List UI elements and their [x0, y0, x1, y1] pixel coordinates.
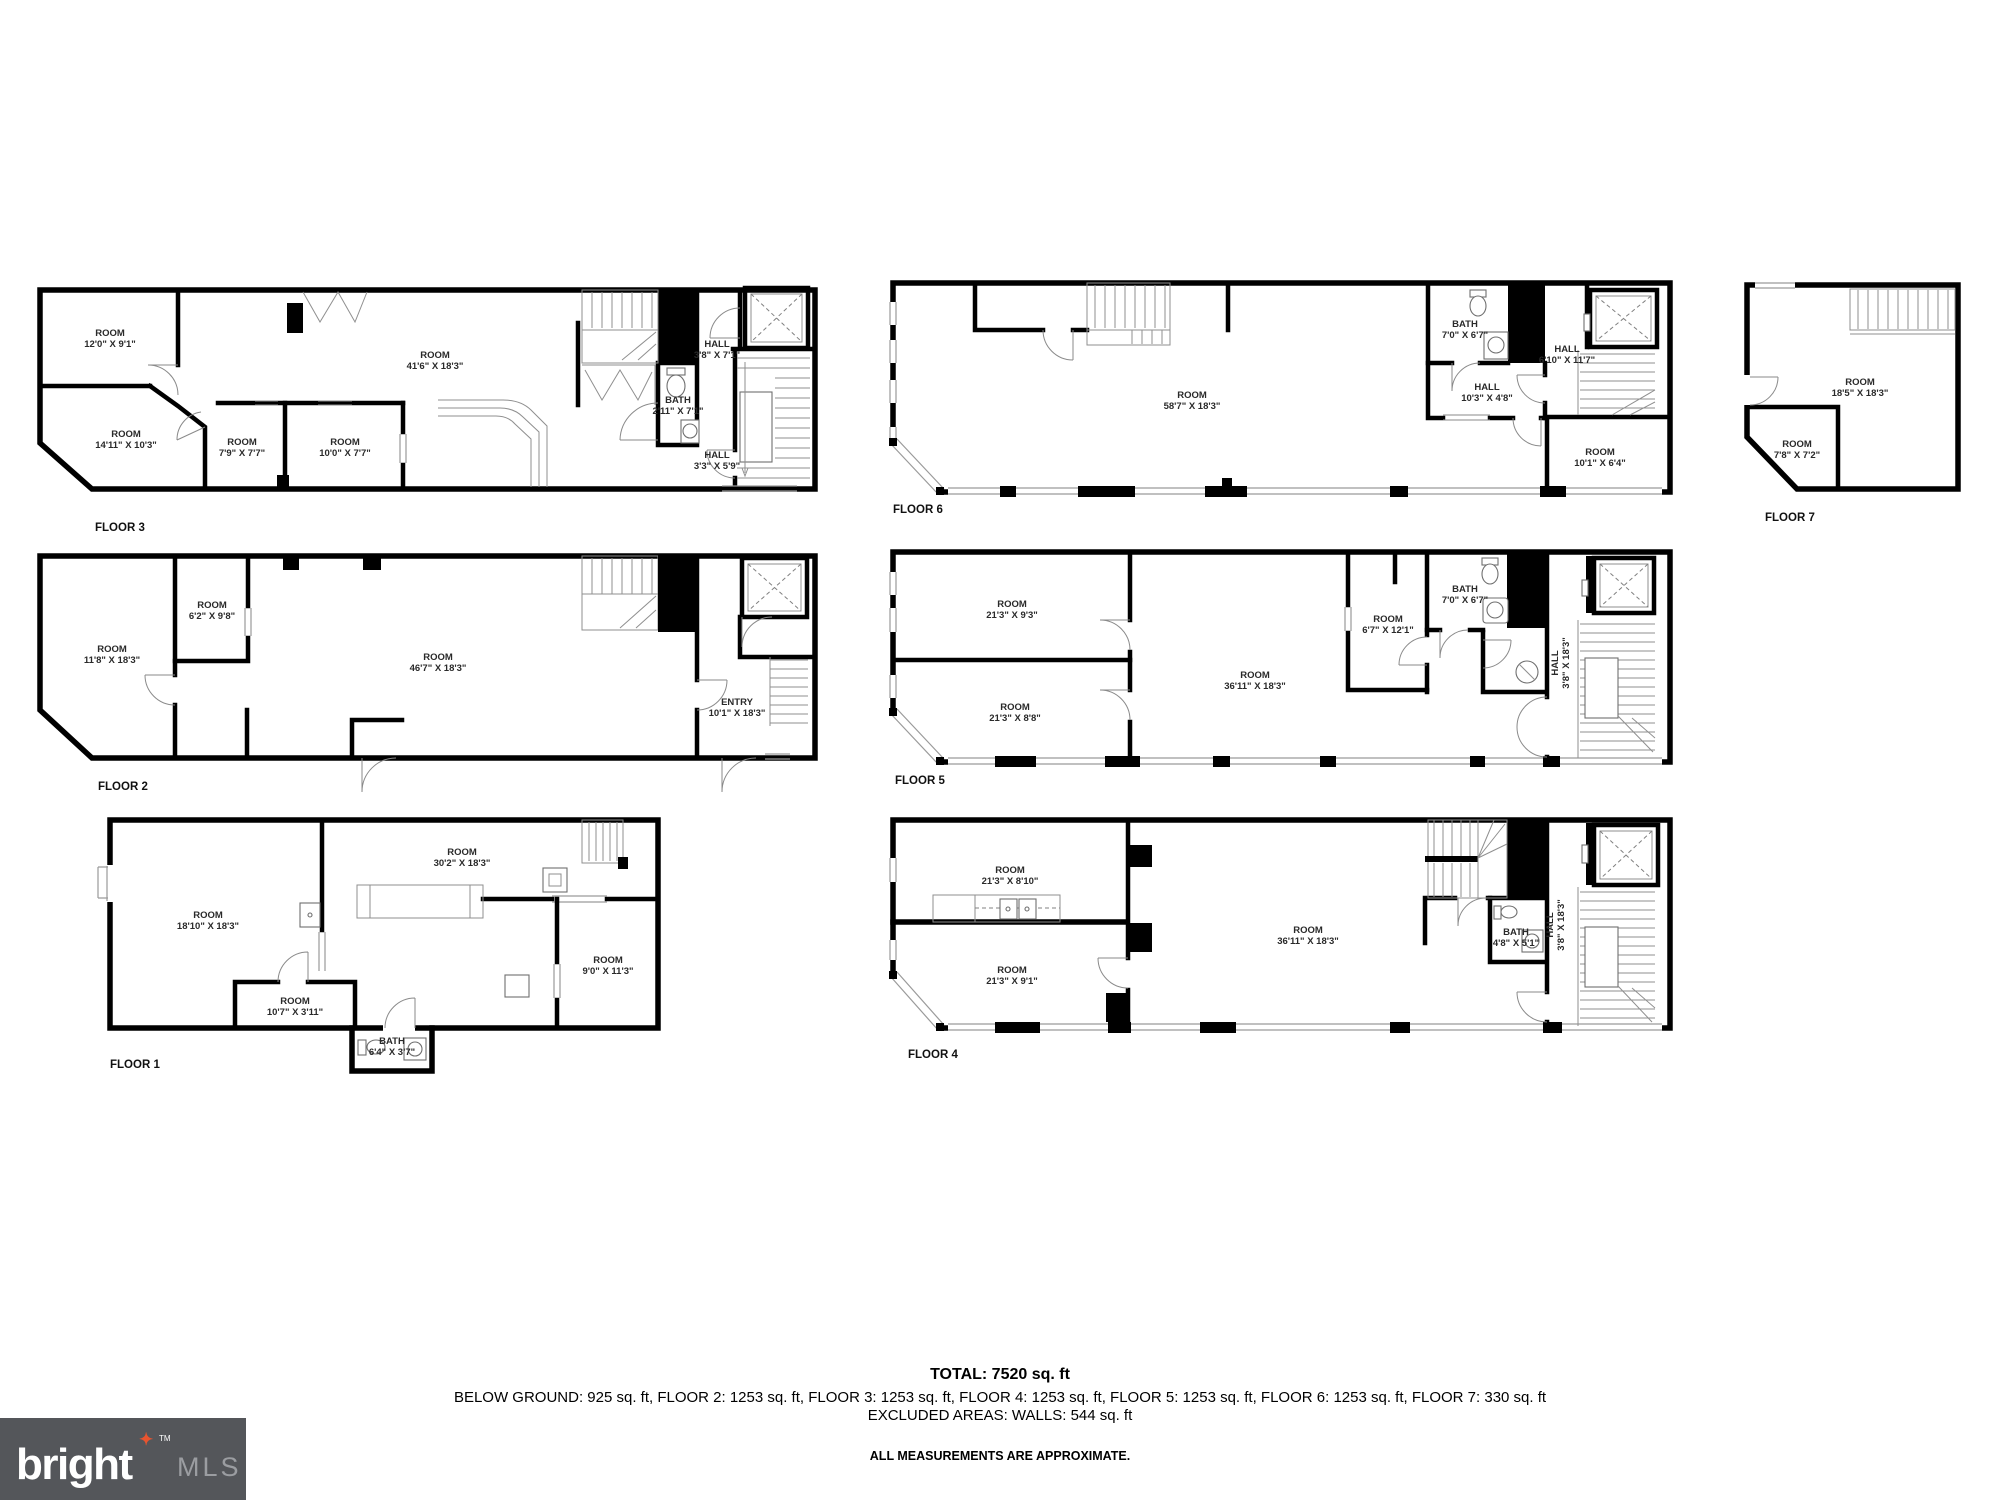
floor-label: FLOOR 6 [893, 504, 943, 516]
floor-4-kitchen-icon [933, 895, 1060, 922]
room-label: HALL [1550, 650, 1561, 676]
room-dims: 46'7" X 18'3" [410, 663, 467, 674]
star-icon: ✦ [139, 1430, 153, 1450]
trademark-text: TM [159, 1434, 171, 1443]
floor-6-bay-window [889, 438, 944, 495]
room-label: ROOM [1782, 439, 1812, 450]
room-dims: 3'3" X 5'9" [694, 461, 740, 472]
room-label: ROOM [197, 600, 227, 611]
room-label: BATH [665, 395, 691, 406]
room-dims: 10'3" X 4'8" [1461, 393, 1513, 404]
room-dims: 12'0" X 9'1" [84, 339, 136, 350]
room-dims: 58'7" X 18'3" [1164, 401, 1221, 412]
room-label: ROOM [1000, 702, 1030, 713]
floor-1-plan: ROOM 18'10" X 18'3" ROOM 30'2" X 18'3" R… [98, 820, 658, 1071]
room-label: ROOM [1177, 390, 1207, 401]
floor-breakdown-text: BELOW GROUND: 925 sq. ft, FLOOR 2: 1253 … [0, 1389, 2000, 1406]
room-dims: 30'2" X 18'3" [434, 858, 491, 869]
floorplan-canvas: ROOM 12'0" X 9'1" ROOM 14'11" X 10'3" RO… [0, 0, 2000, 1500]
room-dims: 6'4" X 3'7" [369, 1047, 415, 1058]
floor-6-doors [1043, 330, 1545, 446]
room-dims: 21'3" X 8'8" [989, 713, 1041, 724]
room-label: ROOM [423, 652, 453, 663]
room-label: HALL [704, 450, 730, 461]
room-dims: 36'11" X 18'3" [1224, 681, 1286, 692]
floor-4-plan: ROOM 21'3" X 8'10" ROOM 21'3" X 9'1" ROO… [888, 818, 1670, 1061]
floor-6-stairs-icon [1087, 283, 1170, 345]
floor-6-elevator-icon [1584, 290, 1657, 347]
room-label: ROOM [1240, 670, 1270, 681]
floor-4-bottom-windows [948, 1022, 1662, 1033]
floor-2-doors [145, 617, 790, 792]
floor-4-elevator-icon [1582, 825, 1658, 885]
room-dims: 18'10" X 18'3" [177, 921, 239, 932]
room-dims: 7'8" X 7'2" [1774, 450, 1820, 461]
room-dims: 10'7" X 3'11" [267, 1007, 323, 1018]
room-dims: 21'3" X 8'10" [982, 876, 1039, 887]
room-dims: 36'11" X 18'3" [1277, 936, 1339, 947]
room-label: ROOM [280, 996, 310, 1007]
floor-5-plan: ROOM 21'3" X 9'3" ROOM 21'3" X 8'8" ROOM… [888, 552, 1670, 787]
floor-7-window [1755, 281, 1795, 290]
room-label: HALL [1554, 344, 1580, 355]
room-dims: 14'11" X 10'3" [95, 440, 157, 451]
room-label: ROOM [1845, 377, 1875, 388]
room-label: ROOM [447, 847, 477, 858]
floor-2-elevator-icon [742, 558, 807, 617]
room-label: ROOM [1293, 925, 1323, 936]
room-dims: 6'7" X 12'1" [1362, 625, 1414, 636]
floor-label: FLOOR 1 [110, 1059, 160, 1071]
room-label: ROOM [1585, 447, 1615, 458]
room-dims: 10'0" X 7'7" [319, 448, 371, 459]
floor-4-stairs-icon [1425, 820, 1507, 898]
floor-3-walls [40, 288, 815, 489]
room-label: ROOM [1373, 614, 1403, 625]
floor-1-walls [98, 820, 658, 1071]
floor-3-counter-icon [438, 400, 547, 487]
room-label: BATH [1452, 584, 1478, 595]
floor-label: FLOOR 4 [908, 1049, 958, 1061]
room-label: ROOM [997, 965, 1027, 976]
floor-5-doors [1100, 620, 1547, 757]
room-label: ROOM [97, 644, 127, 655]
floor-4-doors [1098, 898, 1547, 1022]
room-label: BATH [379, 1036, 405, 1047]
floor-2-plan: ROOM 11'8" X 18'3" ROOM 6'2" X 9'8" ROOM… [40, 554, 815, 793]
floor-7-doors [1743, 375, 1778, 405]
room-dims: 3'8" X 7'1" [694, 350, 740, 361]
room-label: HALL [704, 339, 730, 350]
floor-6-plan: ROOM 58'7" X 18'3" BATH 7'0" X 6'7" HALL… [888, 283, 1670, 516]
room-dims: 4'8" X 5'1" [1493, 938, 1539, 949]
room-dims: 6'2" X 9'8" [189, 611, 235, 622]
floor-1-island-icon [357, 885, 483, 918]
bright-mls-logo: bright ✦ TM MLS [0, 1418, 246, 1500]
disclaimer-text: ALL MEASUREMENTS ARE APPROXIMATE. [0, 1449, 2000, 1463]
floor-2-stairwell-icon [770, 657, 808, 726]
room-label: ROOM [420, 350, 450, 361]
room-dims: 3'8" X 18'3" [1556, 899, 1567, 951]
total-area-text: TOTAL: 7520 sq. ft [0, 1366, 2000, 1384]
excluded-areas-text: EXCLUDED AREAS: WALLS: 544 sq. ft [0, 1407, 2000, 1424]
logo-brand-text: bright [16, 1440, 132, 1490]
floor-7-plan: ROOM 18'5" X 18'3" ROOM 7'8" X 7'2" FLOO… [1743, 281, 1958, 524]
floor-4-stairwell-icon [1578, 887, 1655, 1026]
room-label: BATH [1452, 319, 1478, 330]
room-dims: 7'0" X 6'7" [1442, 330, 1488, 341]
floor-3-stairs-icon [582, 290, 658, 405]
floor-1-stairs-icon [582, 820, 628, 869]
room-label: ROOM [95, 328, 125, 339]
floor-1-fixtures [300, 868, 567, 997]
logo-suffix-text: MLS [177, 1452, 242, 1483]
floor-6-bottom-windows [948, 486, 1662, 497]
room-dims: 3'8" X 18'3" [1561, 637, 1572, 689]
room-dims: 21'3" X 9'3" [986, 610, 1038, 621]
room-label: ROOM [330, 437, 360, 448]
room-dims: 21'3" X 9'1" [986, 976, 1038, 987]
room-dims: 6'10" X 11'7" [1539, 355, 1595, 366]
room-label: ROOM [593, 955, 623, 966]
floor-5-bay-window [889, 708, 944, 765]
room-dims: 7'9" X 7'7" [219, 448, 265, 459]
floor-2-stairs-icon [582, 554, 697, 632]
floor-5-elevator-icon [1582, 558, 1654, 613]
room-dims: 7'0" X 6'7" [1442, 595, 1488, 606]
room-label: ROOM [193, 910, 223, 921]
room-dims: 41'6" X 18'3" [407, 361, 464, 372]
floor-label: FLOOR 2 [98, 781, 148, 793]
floor-4-bay-window [889, 971, 944, 1031]
floor-3-bay-window-icon [303, 292, 367, 322]
room-label: HALL [1474, 382, 1500, 393]
room-dims: 10'1" X 6'4" [1574, 458, 1626, 469]
room-dims: 2'11" X 7'1" [652, 406, 703, 417]
floor-3-elevator-icon [745, 288, 808, 348]
floor-5-bottom-windows [948, 756, 1662, 767]
room-dims: 18'5" X 18'3" [1832, 388, 1889, 399]
floorplan-page: { "floors": [ {"id":"floor-3","label":"F… [0, 0, 2000, 1500]
room-dims: 11'8" X 18'3" [84, 655, 140, 666]
floor-7-stairs-icon [1850, 289, 1955, 334]
room-label: ROOM [111, 429, 141, 440]
floor-3-stairwell-icon [737, 358, 810, 478]
room-label: ENTRY [721, 697, 754, 708]
room-label: ROOM [997, 599, 1027, 610]
room-dims: 10'1" X 18'3" [709, 708, 766, 719]
room-dims: 9'0" X 11'3" [582, 966, 633, 977]
room-label: ROOM [995, 865, 1025, 876]
room-label: BATH [1503, 927, 1529, 938]
floor-label: FLOOR 5 [895, 775, 945, 787]
floor-3-plan: ROOM 12'0" X 9'1" ROOM 14'11" X 10'3" RO… [40, 288, 815, 534]
room-label: HALL [1545, 912, 1556, 938]
room-label: ROOM [227, 437, 257, 448]
floor-6-walls [893, 283, 1670, 492]
floor-label: FLOOR 7 [1765, 512, 1815, 524]
floor-5-stairwell-icon [1578, 620, 1655, 758]
floor-label: FLOOR 3 [95, 522, 145, 534]
